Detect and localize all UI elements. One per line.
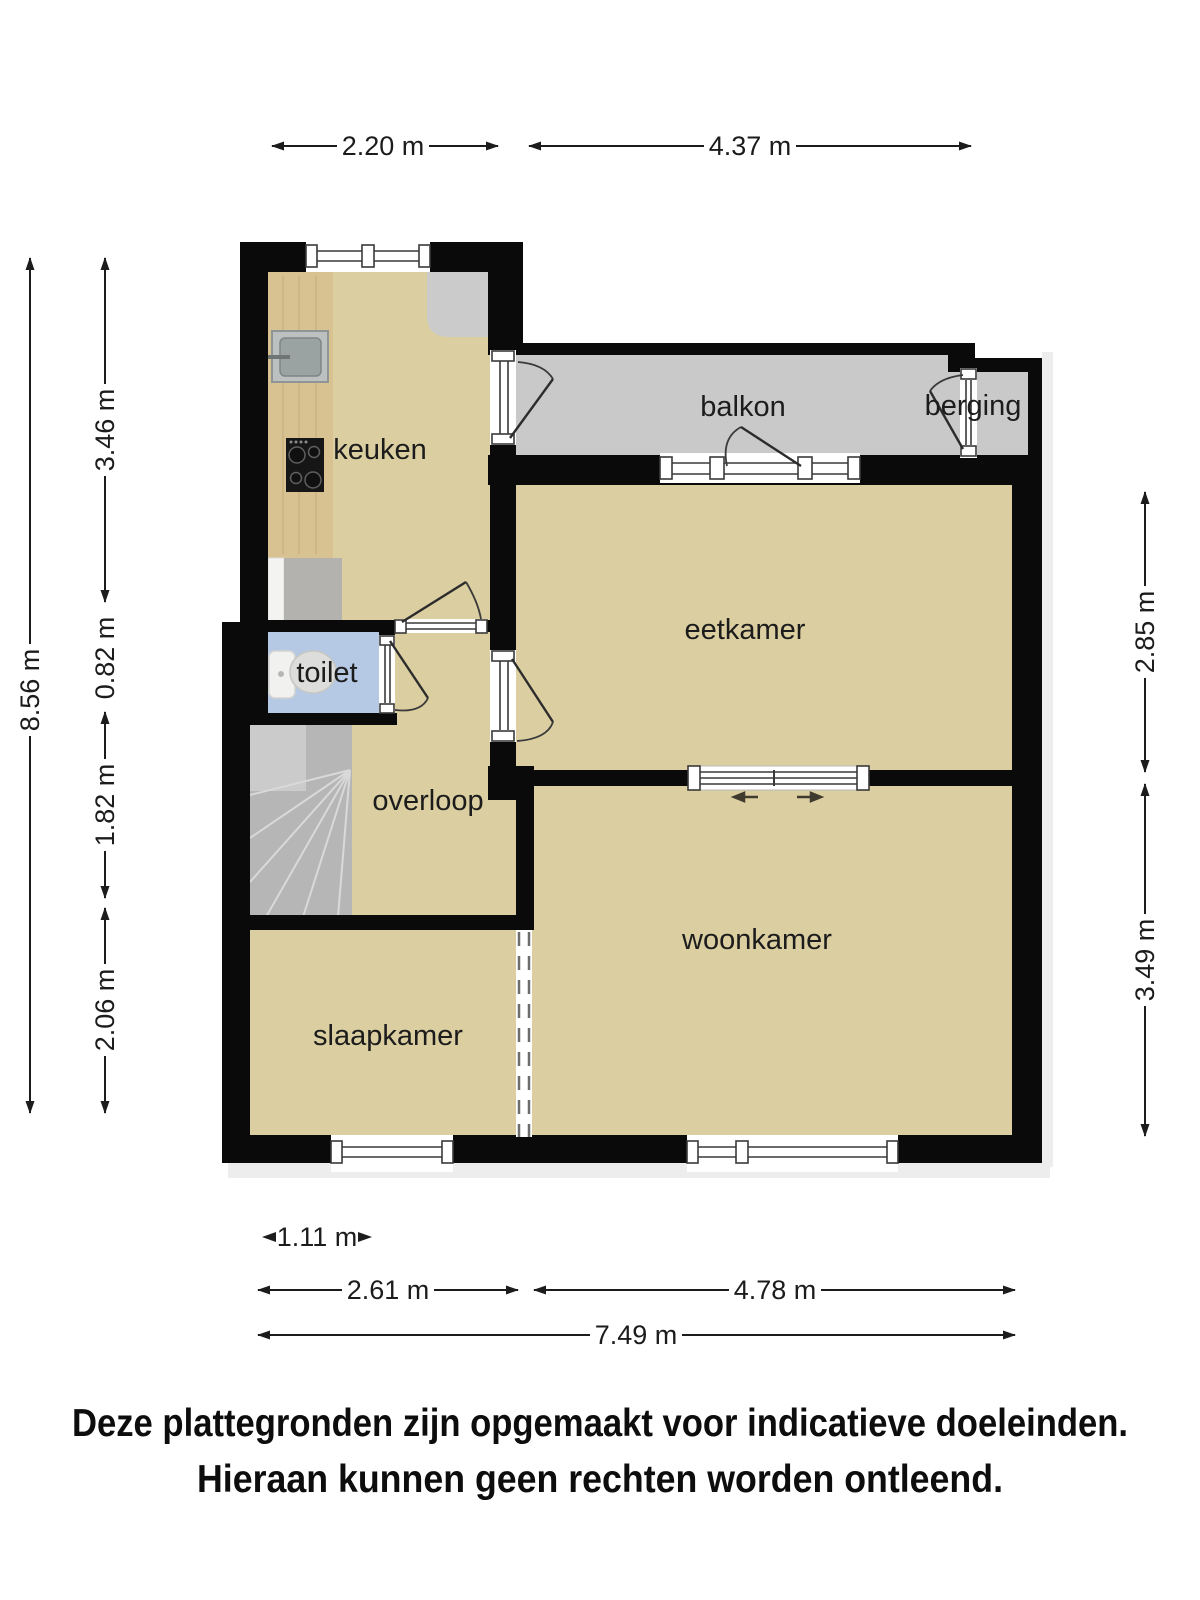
room-floors [250, 272, 1028, 1135]
wall-overloop-woonkamer [516, 780, 534, 930]
wall-left-lower [222, 622, 250, 1163]
wall-slider-right [867, 770, 1012, 786]
wall-toilet-top [240, 620, 397, 632]
keuken-window [306, 236, 430, 272]
dim-111: 1.11 m [262, 1222, 372, 1252]
appliance-white-strip [268, 558, 284, 622]
eetkamer-balkon-window [660, 453, 860, 483]
wall-slider-left [516, 770, 690, 786]
kitchen-counter [268, 272, 333, 558]
woonkamer-label: woonkamer [681, 924, 832, 956]
wall-overloop-slaapkamer [250, 915, 534, 930]
dim-label-349: 3.49 m [1130, 919, 1160, 1002]
washbasin-drain-icon [278, 671, 284, 677]
floorplan-canvas: keuken balkon berging eetkamer toilet ov… [0, 0, 1200, 1600]
wall-toilet-bottom [222, 713, 397, 725]
stairs [250, 723, 352, 917]
kitchen-cabinet [427, 265, 490, 337]
woonkamer-floor [532, 786, 1012, 1135]
dim-label-261: 2.61 m [347, 1275, 430, 1305]
keuken-label: keuken [333, 434, 427, 466]
slaapkamer-label: slaapkamer [313, 1020, 463, 1052]
disclaimer-line-1: Deze plattegronden zijn opgemaakt voor i… [72, 1402, 1128, 1445]
dim-label-478: 4.78 m [734, 1275, 817, 1305]
shadow-right [1042, 352, 1053, 1167]
dim-label-749: 7.49 m [595, 1320, 678, 1350]
dashed-wall [516, 930, 532, 1137]
wall-keuken-right-corner [488, 242, 523, 350]
toilet-label: toilet [296, 657, 357, 689]
wall-left-upper [240, 242, 268, 632]
eetkamer-label: eetkamer [685, 614, 806, 646]
dim-label-182: 1.82 m [90, 764, 120, 847]
dim-label-346: 3.46 m [90, 389, 120, 472]
woonkamer-window [687, 1135, 898, 1172]
berging-label: berging [925, 390, 1022, 422]
stairs-landing [250, 723, 306, 791]
wall-berging-right [1028, 358, 1042, 490]
dim-label-437: 4.37 m [709, 131, 792, 161]
appliance-gray [284, 558, 342, 622]
dim-label-285: 2.85 m [1130, 591, 1160, 674]
slaapkamer-window [331, 1135, 453, 1172]
dim-label-220: 2.20 m [342, 131, 425, 161]
dim-label-206: 2.06 m [90, 969, 120, 1052]
dim-label-111: 1.11 m [277, 1222, 358, 1252]
dim-label-856: 8.56 m [15, 649, 45, 732]
dim-label-082: 0.82 m [90, 617, 120, 700]
wall-balkon-top [488, 343, 968, 355]
disclaimer-line-2: Hieraan kunnen geen rechten worden ontle… [197, 1458, 1003, 1501]
wall-right [1012, 455, 1042, 1163]
overloop-label: overloop [372, 785, 483, 817]
balkon-label: balkon [700, 391, 785, 423]
